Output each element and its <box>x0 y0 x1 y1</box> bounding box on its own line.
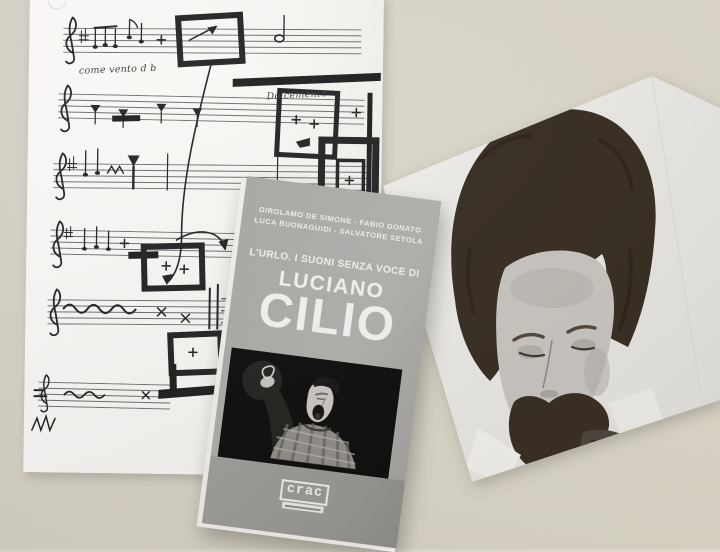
dark-garment <box>573 430 639 486</box>
singer-illustration <box>218 347 403 478</box>
cover-text-block: GIROLAMO DE SIMONE - FABIO DONATO LUCA B… <box>225 176 442 372</box>
cover-photo-singer <box>218 347 403 478</box>
